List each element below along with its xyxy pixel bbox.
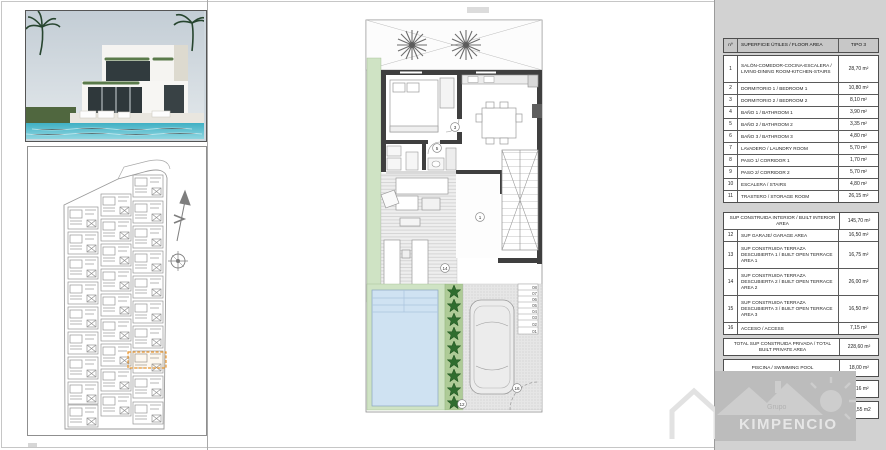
- watermark-group-text: Grupo: [767, 404, 787, 411]
- row-value: 10,80 m²: [839, 83, 878, 94]
- plan-sheet: 08 07 06 05 04 03 02 01 3 5 1 14 12: [0, 0, 886, 450]
- bathroom-fixtures: [387, 146, 456, 170]
- row-label: TOTAL SUP CONSTRUIDA PRIVADA / TOTAL BUI…: [724, 339, 840, 355]
- row-label: SUP CONSTRUIDA INTERIOR / BUILT INTERIOR…: [724, 213, 840, 229]
- north-arrow-icon: [174, 191, 190, 241]
- tree-icon: [451, 30, 481, 60]
- row-label: DORMITORIO 2 / BEDROOM 2: [738, 95, 839, 106]
- tree-icon: [397, 30, 427, 60]
- row-label: PASO 1/ CORRIDOR 1: [738, 155, 839, 166]
- step-label: 07: [532, 291, 537, 296]
- table-row: 14SUP CONSTRUIDA TERRAZA DESCUBIERTA 2 /…: [724, 268, 878, 295]
- svg-text:1: 1: [479, 215, 482, 220]
- row-label: ESCALERA / STAIRS: [738, 179, 839, 190]
- step-label: 02: [532, 322, 537, 327]
- floor-plan: 08 07 06 05 04 03 02 01 3 5 1 14 12: [360, 12, 544, 416]
- row-value: 16,75 m²: [839, 242, 878, 268]
- table-header-row: nºSUPERFICIE ÚTILES / FLOOR AREATIPO 3: [724, 39, 878, 52]
- row-label: BAÑO 3 / BATHROOM 3: [738, 131, 839, 142]
- row-value: 4,80 m²: [839, 179, 878, 190]
- row-number: 5: [724, 119, 738, 130]
- table-row: 16ACCESO / ACCESS7,15 m²: [724, 322, 878, 334]
- total-block: TOTAL SUP CONSTRUIDA PRIVADA / TOTAL BUI…: [723, 338, 879, 356]
- row-value: 3,90 m²: [839, 107, 878, 118]
- useful-areas-block: 1SALÓN-COMEDOR-COCINA-ESCALERA / LIVING-…: [723, 55, 879, 203]
- row-number: 14: [724, 269, 738, 295]
- row-value: 26,00 m²: [839, 269, 878, 295]
- row-label: SUP CONSTRUIDA TERRAZA DESCUBIERTA 3 / B…: [738, 296, 839, 322]
- row-value: 5,70 m²: [839, 167, 878, 178]
- table-row: 6BAÑO 3 / BATHROOM 34,80 m²: [724, 130, 878, 142]
- row-value: 16,50 m²: [839, 296, 878, 322]
- row-label: ACCESO / ACCESS: [738, 323, 839, 334]
- table-row: 1SALÓN-COMEDOR-COCINA-ESCALERA / LIVING-…: [724, 56, 878, 82]
- row-number: 10: [724, 179, 738, 190]
- table-row: 11TRASTERO / STORAGE ROOM26,15 m²: [724, 190, 878, 202]
- step-label: 05: [532, 303, 537, 308]
- row-value: 228,60 m²: [840, 339, 878, 355]
- row-label: SUP CONSTRUIDA TERRAZA DESCUBIERTA 2 / B…: [738, 269, 839, 295]
- svg-text:5: 5: [436, 146, 439, 151]
- step-label: 01: [532, 329, 537, 334]
- svg-text:12: 12: [459, 402, 465, 407]
- row-label: PASO 2/ CORRIDOR 2: [738, 167, 839, 178]
- row-label: BAÑO 2 / BATHROOM 2: [738, 119, 839, 130]
- row-value: 4,80 m²: [839, 131, 878, 142]
- row-number: 3: [724, 95, 738, 106]
- table-row: 12SUP GARAJE/ GARAGE AREA16,50 m²: [724, 229, 878, 241]
- row-value: 7,15 m²: [839, 323, 878, 334]
- row-label: LAVADERO / LAUNDRY ROOM: [738, 143, 839, 154]
- table-row: TOTAL SUP CONSTRUIDA PRIVADA / TOTAL BUI…: [724, 339, 878, 355]
- side-garden: [367, 58, 381, 302]
- row-value: 16,50 m²: [839, 230, 878, 241]
- swimming-pool: [372, 290, 438, 406]
- svg-text:3: 3: [454, 125, 457, 130]
- row-number: 12: [724, 230, 738, 241]
- site-units: [68, 175, 163, 427]
- row-label: SUPERFICIE ÚTILES / FLOOR AREA: [738, 39, 839, 52]
- bed: [390, 78, 454, 132]
- row-value: 1,70 m²: [839, 155, 878, 166]
- svg-text:16: 16: [514, 386, 520, 391]
- row-label: SUP CONSTRUIDA TERRAZA DESCUBIERTA 1 / B…: [738, 242, 839, 268]
- table-row: 13SUP CONSTRUIDA TERRAZA DESCUBIERTA 1 /…: [724, 241, 878, 268]
- table-row: 9PASO 2/ CORRIDOR 25,70 m²: [724, 166, 878, 178]
- row-number: 16: [724, 323, 738, 334]
- floor-plan-drawing: 08 07 06 05 04 03 02 01 3 5 1 14 12: [360, 12, 544, 416]
- access-steps: 08 07 06 05 04 03 02 01: [518, 284, 538, 334]
- site-boundary: [64, 170, 167, 429]
- step-label: 08: [532, 285, 537, 290]
- watermark: Grupo KIMPENCIO: [715, 371, 856, 441]
- compass-icon: [168, 251, 188, 271]
- table-row: SUP CONSTRUIDA INTERIOR / BUILT INTERIOR…: [724, 213, 878, 229]
- villa-pool: [26, 123, 204, 139]
- site-plan-drawing: [28, 147, 204, 433]
- watermark-house-outline: [668, 385, 718, 441]
- row-value: 3,35 m²: [839, 119, 878, 130]
- row-number: 7: [724, 143, 738, 154]
- table-row: 5BAÑO 2 / BATHROOM 23,35 m²: [724, 118, 878, 130]
- villa-render-photo: [25, 10, 207, 142]
- row-number: 6: [724, 131, 738, 142]
- car: [470, 300, 514, 394]
- row-number: 9: [724, 167, 738, 178]
- table-row: 2DORMITORIO 1 / BEDROOM 110,80 m²: [724, 82, 878, 94]
- row-number: 1: [724, 56, 738, 82]
- svg-text:14: 14: [442, 266, 448, 271]
- step-label: 04: [532, 309, 537, 314]
- corner-mark: [28, 443, 37, 447]
- row-value: 8,10 m²: [839, 95, 878, 106]
- step-label: 03: [532, 315, 537, 320]
- dining-table: [476, 102, 522, 144]
- table-row: 8PASO 1/ CORRIDOR 11,70 m²: [724, 154, 878, 166]
- areas-table: nºSUPERFICIE ÚTILES / FLOOR AREATIPO 31S…: [723, 38, 879, 419]
- divider-left: [207, 0, 208, 450]
- row-label: SALÓN-COMEDOR-COCINA-ESCALERA / LIVING-D…: [738, 56, 839, 82]
- row-number: 4: [724, 107, 738, 118]
- table-header-block: nºSUPERFICIE ÚTILES / FLOOR AREATIPO 3: [723, 38, 879, 53]
- table-row: 10ESCALERA / STAIRS4,80 m²: [724, 178, 878, 190]
- row-label: SUP GARAJE/ GARAGE AREA: [738, 230, 839, 241]
- stairs: [502, 150, 538, 250]
- built-areas-block: SUP CONSTRUIDA INTERIOR / BUILT INTERIOR…: [723, 212, 879, 335]
- row-value: 5,70 m²: [839, 143, 878, 154]
- row-label: BAÑO 1 / BATHROOM 1: [738, 107, 839, 118]
- table-row: 3DORMITORIO 2 / BEDROOM 28,10 m²: [724, 94, 878, 106]
- selected-unit-highlight: [128, 352, 166, 368]
- table-row: 4BAÑO 1 / BATHROOM 13,90 m²: [724, 106, 878, 118]
- row-label: TRASTERO / STORAGE ROOM: [738, 191, 839, 202]
- row-value: 26,15 m²: [839, 191, 878, 202]
- row-value: 28,70 m²: [839, 56, 878, 82]
- table-row: 15SUP CONSTRUIDA TERRAZA DESCUBIERTA 3 /…: [724, 295, 878, 322]
- row-number: 13: [724, 242, 738, 268]
- row-number: 15: [724, 296, 738, 322]
- step-label: 06: [532, 297, 537, 302]
- terrace-furniture: [80, 111, 170, 118]
- site-plan: [27, 146, 207, 436]
- row-number: 8: [724, 155, 738, 166]
- villa-render-art: [26, 11, 204, 139]
- row-value: 145,70 m²: [840, 213, 878, 229]
- row-number: 2: [724, 83, 738, 94]
- roof-terrace: [366, 20, 542, 70]
- watermark-brand-text: KIMPENCIO: [739, 416, 838, 433]
- row-label: DORMITORIO 1 / BEDROOM 1: [738, 83, 839, 94]
- row-number: 11: [724, 191, 738, 202]
- row-value: TIPO 3: [839, 39, 878, 52]
- row-number: nº: [724, 39, 738, 52]
- table-row: 7LAVADERO / LAUNDRY ROOM5,70 m²: [724, 142, 878, 154]
